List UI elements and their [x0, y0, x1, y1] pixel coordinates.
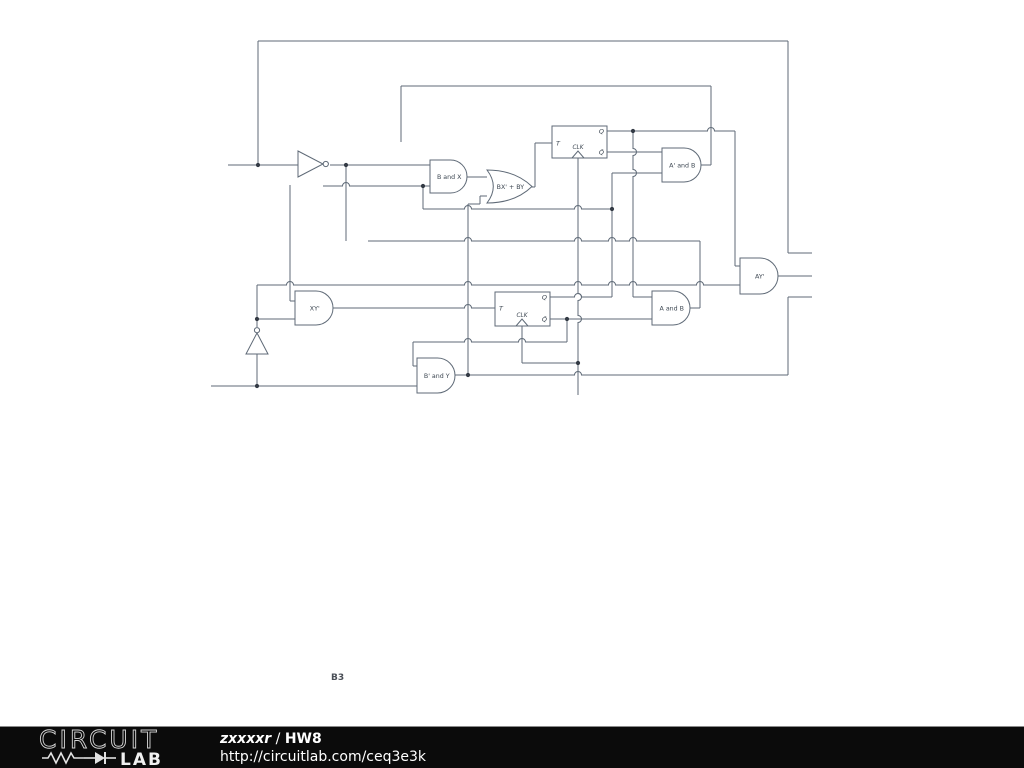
and-gate-a-and-b-label: A' and B [669, 162, 695, 169]
wire[interactable] [607, 128, 735, 131]
t-flipflop-1-pin-label: Q [599, 128, 604, 136]
wire[interactable] [257, 282, 740, 286]
credit-block: zxxxxr / HW8 http://circuitlab.com/ceq3e… [220, 730, 426, 766]
logo-word-lab: LAB [120, 750, 163, 768]
footer-bar: CIRCUIT LAB zxxxxr / HW8 http://circuitl… [0, 726, 1024, 768]
wire[interactable] [333, 305, 495, 308]
and-gate-a-and-b-label: A and B [660, 305, 684, 312]
circuitlab-export-page: B and XBX' + BYA' and BAY'XY'A and BB' a… [0, 0, 1024, 768]
wire[interactable] [368, 238, 700, 241]
inverter-bubble-icon [254, 328, 259, 333]
and-gate-xy-label: XY' [310, 305, 320, 312]
t-flipflop-2-pin-label: Q [542, 294, 547, 302]
inverter-2[interactable] [246, 333, 268, 354]
and-gate-b-and-y-label: B' and Y [424, 373, 450, 380]
junction-dot [421, 184, 425, 188]
wire[interactable] [578, 158, 582, 395]
wire[interactable] [413, 339, 567, 343]
inverter-bubble-icon [323, 161, 328, 166]
wire[interactable] [455, 372, 788, 376]
schematic-title: HW8 [285, 731, 322, 747]
circuitlab-logo: CIRCUIT LAB [36, 727, 216, 768]
junction-dot [576, 361, 580, 365]
junction-dot [344, 163, 348, 167]
and-gate-ay-label: AY' [755, 273, 765, 280]
junction-dot [466, 373, 470, 377]
schematic-annotation: B3 [331, 673, 344, 683]
junction-dot [256, 163, 260, 167]
junction-dot [565, 317, 569, 321]
schematic-canvas: B and XBX' + BYA' and BAY'XY'A and BB' a… [0, 0, 1024, 726]
t-flipflop-1-pin-label: CLK [572, 145, 584, 151]
wire[interactable] [633, 131, 637, 297]
junction-dot [255, 317, 259, 321]
wire[interactable] [423, 206, 612, 210]
wire[interactable] [323, 183, 430, 186]
junction-dot [255, 384, 259, 388]
credit-line: zxxxxr / HW8 [220, 730, 426, 748]
and-gate-b-and-x-label: B and X [437, 174, 462, 181]
junction-dot [610, 207, 614, 211]
credit-separator: / [271, 731, 285, 747]
junction-dot [631, 129, 635, 133]
t-flipflop-1-pin-label: Q̄ [599, 147, 604, 156]
t-flipflop-2-pin-label: CLK [516, 313, 528, 319]
or-gate-bx-by-label: BX' + BY [497, 184, 525, 191]
t-flipflop-2-pin-label: Q̄ [542, 314, 547, 323]
resistor-icon [42, 753, 84, 763]
inverter-1[interactable] [298, 151, 323, 177]
schematic-url: http://circuitlab.com/ceq3e3k [220, 748, 426, 766]
author-name: zxxxxr [220, 731, 271, 747]
